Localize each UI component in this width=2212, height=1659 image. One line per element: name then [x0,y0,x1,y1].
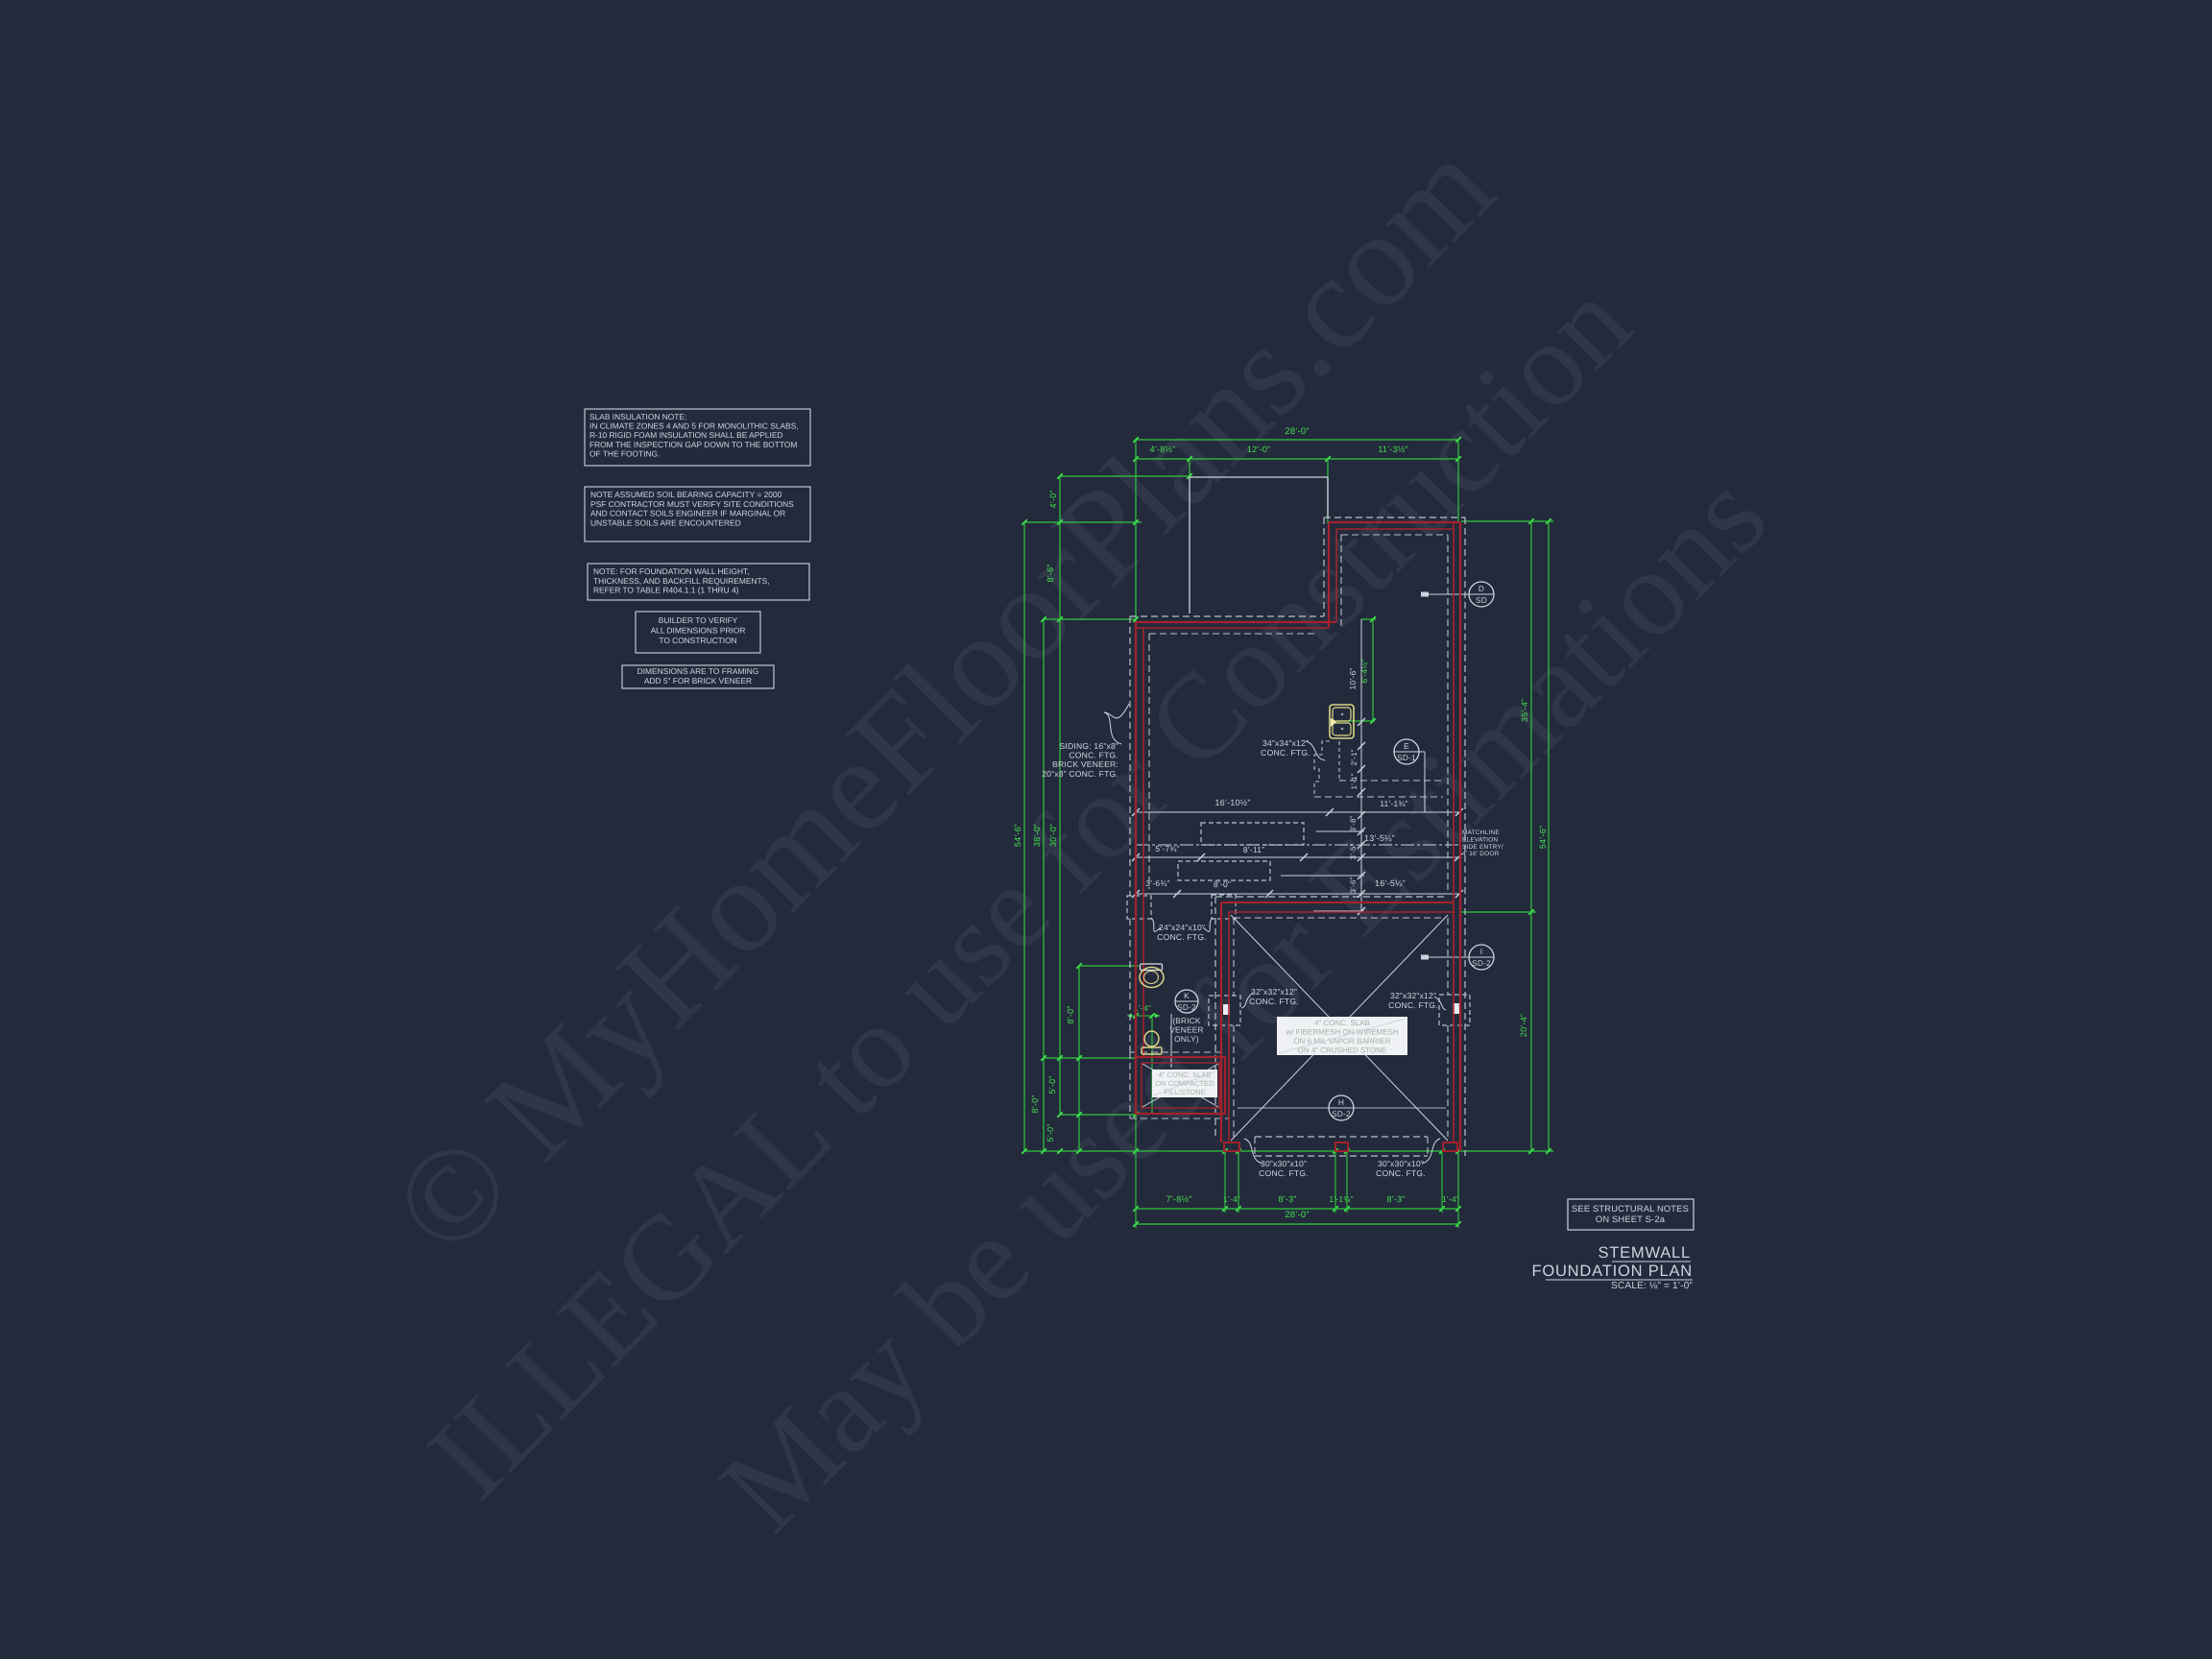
svg-text:2’-1”: 2’-1” [1350,749,1358,765]
svg-text:4” CONC. SLAB: 4” CONC. SLAB [1314,1019,1370,1027]
svg-text:34”x34”x12”: 34”x34”x12” [1262,738,1309,748]
svg-text:OF THE FOOTING.: OF THE FOOTING. [589,448,660,458]
svg-text:STEMWALL: STEMWALL [1598,1244,1691,1262]
svg-text:8’-0”: 8’-0” [1214,879,1231,889]
svg-text:TO CONSTRUCTION: TO CONSTRUCTION [659,636,736,645]
svg-text:FROM THE INSPECTION GAP DOWN T: FROM THE INSPECTION GAP DOWN TO THE BOTT… [589,440,797,449]
svg-text:ELEVATION: ELEVATION [1462,836,1498,843]
svg-text:3’-8”: 3’-8” [1349,815,1358,831]
svg-text:4’-8½”: 4’-8½” [1150,445,1176,454]
svg-text:3’-5”: 3’-5” [1349,843,1358,859]
svg-text:54’-6”: 54’-6” [1013,824,1022,847]
svg-text:13’-5¼”: 13’-5¼” [1364,833,1395,843]
svg-text:SD-1: SD-1 [1397,753,1416,762]
svg-text:8’-6”: 8’-6” [1046,564,1055,582]
svg-text:SD-2: SD-2 [1472,958,1491,968]
svg-text:BRICK VENEER:: BRICK VENEER: [1052,759,1118,769]
svg-text:CONC. FTG.: CONC. FTG. [1249,997,1299,1006]
svg-text:16’-5¼”: 16’-5¼” [1375,878,1406,888]
svg-text:FOUNDATION PLAN: FOUNDATION PLAN [1531,1262,1693,1280]
svg-text:CONC. FTG.: CONC. FTG. [1376,1168,1426,1178]
svg-text:11’-3½”: 11’-3½” [1378,445,1407,454]
svg-text:32”x32”x12”: 32”x32”x12” [1390,991,1436,1000]
svg-text:30”x30”x10”: 30”x30”x10” [1378,1159,1424,1168]
svg-text:20”x8” CONC. FTG.: 20”x8” CONC. FTG. [1042,769,1118,779]
svg-text:CONC. FTG.: CONC. FTG. [1388,1000,1438,1010]
svg-text:20’-4”: 20’-4” [1519,1014,1528,1037]
svg-text:K: K [1184,991,1190,1000]
svg-text:SCALE: ⅛” = 1’-0”: SCALE: ⅛” = 1’-0” [1611,1281,1693,1291]
svg-text:8’-0”: 8’-0” [1066,1005,1075,1023]
svg-text:PSF CONTRACTOR MUST VERIFY SIT: PSF CONTRACTOR MUST VERIFY SITE CONDITIO… [590,499,794,509]
svg-text:8’-3”: 8’-3” [1278,1194,1296,1204]
svg-text:ONLY): ONLY) [1174,1034,1199,1044]
svg-text:30”x30”x10”: 30”x30”x10” [1261,1159,1307,1168]
svg-text:5’-0”: 5’-0” [1046,1123,1055,1142]
svg-text:SD-2: SD-2 [1332,1109,1351,1118]
svg-text:1’-4”: 1’-4” [1223,1194,1240,1204]
svg-text:4’-0”: 4’-0” [1048,490,1058,508]
svg-text:5’-7¾”: 5’-7¾” [1155,844,1179,854]
svg-text:CONC. FTG.: CONC. FTG. [1259,1168,1309,1178]
svg-text:CONC. FTG.: CONC. FTG. [1157,932,1207,942]
svg-text:12’-0”: 12’-0” [1247,445,1270,454]
svg-text:24”x24”x10”: 24”x24”x10” [1159,923,1205,932]
svg-text:THICKNESS, AND BACKFILL REQUIR: THICKNESS, AND BACKFILL REQUIREMENTS, [593,576,770,586]
svg-text:1’-1¾”: 1’-1¾” [1329,1194,1353,1204]
svg-text:DIMENSIONS ARE TO FRAMING: DIMENSIONS ARE TO FRAMING [637,666,759,676]
svg-text:8’-3”: 8’-3” [1386,1194,1405,1204]
svg-text:IN CLIMATE ZONES 4 AND 5 FOR M: IN CLIMATE ZONES 4 AND 5 FOR MONOLITHIC … [589,421,799,431]
svg-text:35’-4”: 35’-4” [1520,699,1529,722]
svg-text:R-10 RIGID FOAM INSULATION SHA: R-10 RIGID FOAM INSULATION SHALL BE APPL… [589,430,783,440]
svg-text:3’-6”: 3’-6” [1349,877,1358,893]
svg-text:SEE STRUCTURAL NOTES: SEE STRUCTURAL NOTES [1572,1204,1689,1214]
svg-text:30’-0”: 30’-0” [1048,824,1058,847]
svg-text:ON 4” CRUSHED STONE: ON 4” CRUSHED STONE [1298,1046,1387,1055]
svg-text:8’-11”: 8’-11” [1243,845,1264,854]
svg-text:SLAB INSULATION NOTE:: SLAB INSULATION NOTE: [589,412,686,421]
svg-text:CONC. FTG.: CONC. FTG. [1261,748,1310,757]
svg-text:SD-2: SD-2 [1177,1002,1196,1012]
svg-text:E: E [1404,741,1409,751]
svg-text:54’-6”: 54’-6” [1538,826,1548,849]
svg-text:AND CONTACT SOILS ENGINEER IF: AND CONTACT SOILS ENGINEER IF MARGINAL O… [590,509,785,518]
svg-text:w/ FIBERMESH ON WIREMESH: w/ FIBERMESH ON WIREMESH [1285,1028,1399,1037]
svg-text:ADD 5” FOR BRICK VENEER: ADD 5” FOR BRICK VENEER [644,676,752,685]
svg-text:3’-6¾”: 3’-6¾” [1145,878,1169,888]
svg-text:BUILDER TO VERIFY: BUILDER TO VERIFY [659,615,738,625]
svg-text:MATCHLINE: MATCHLINE [1462,829,1500,836]
svg-text:NOTE ASSUMED SOIL BEARING CAPA: NOTE ASSUMED SOIL BEARING CAPACITY = 200… [590,490,782,499]
svg-text:NOTE: FOR FOUNDATION WALL HEIG: NOTE: FOR FOUNDATION WALL HEIGHT, [593,566,750,576]
svg-text:5’-0”: 5’-0” [1047,1075,1057,1094]
svg-text:ALL DIMENSIONS PRIOR: ALL DIMENSIONS PRIOR [651,625,746,635]
svg-text:I: I [1480,947,1483,956]
svg-text:16’-10½”: 16’-10½” [1214,798,1250,807]
svg-text:10’-6”: 10’-6” [1348,668,1358,690]
svg-text:1’-4”: 1’-4” [1442,1194,1459,1204]
svg-text:8’-0”: 8’-0” [1030,1094,1040,1113]
svg-text:32”x32”x12”: 32”x32”x12” [1251,987,1297,997]
svg-text:UNSTABLE SOILS ARE ENCOUNTERED: UNSTABLE SOILS ARE ENCOUNTERED [590,517,741,527]
svg-text:SD: SD [1476,595,1487,605]
svg-text:SIDING: 16”x8”: SIDING: 16”x8” [1059,741,1118,751]
svg-text:38’-0”: 38’-0” [1032,824,1042,847]
svg-text:D: D [1479,584,1484,593]
svg-text:1’-1”: 1’-1” [1350,773,1358,789]
svg-text:H: H [1338,1097,1344,1107]
svg-text:CONC. FTG.: CONC. FTG. [1069,751,1118,760]
svg-text:4” CONC. SLAB: 4” CONC. SLAB [1159,1070,1212,1079]
svg-text:11’-1¾”: 11’-1¾” [1380,799,1408,808]
svg-text:28’-0”: 28’-0” [1285,1210,1310,1220]
svg-text:7’-8½”: 7’-8½” [1166,1194,1192,1204]
svg-text:REFER TO TABLE R404.1.1 (1 THR: REFER TO TABLE R404.1.1 (1 THRU 4) [593,586,739,595]
svg-text:28’-0”: 28’-0” [1285,426,1310,437]
svg-text:ON 6 MIL VAPOR BARRIER: ON 6 MIL VAPOR BARRIER [1293,1037,1391,1046]
svg-text:4’ 16’ DOOR: 4’ 16’ DOOR [1462,851,1500,857]
svg-text:SIDE ENTRY/: SIDE ENTRY/ [1462,844,1503,851]
svg-text:ON SHEET S-2a: ON SHEET S-2a [1596,1214,1666,1224]
